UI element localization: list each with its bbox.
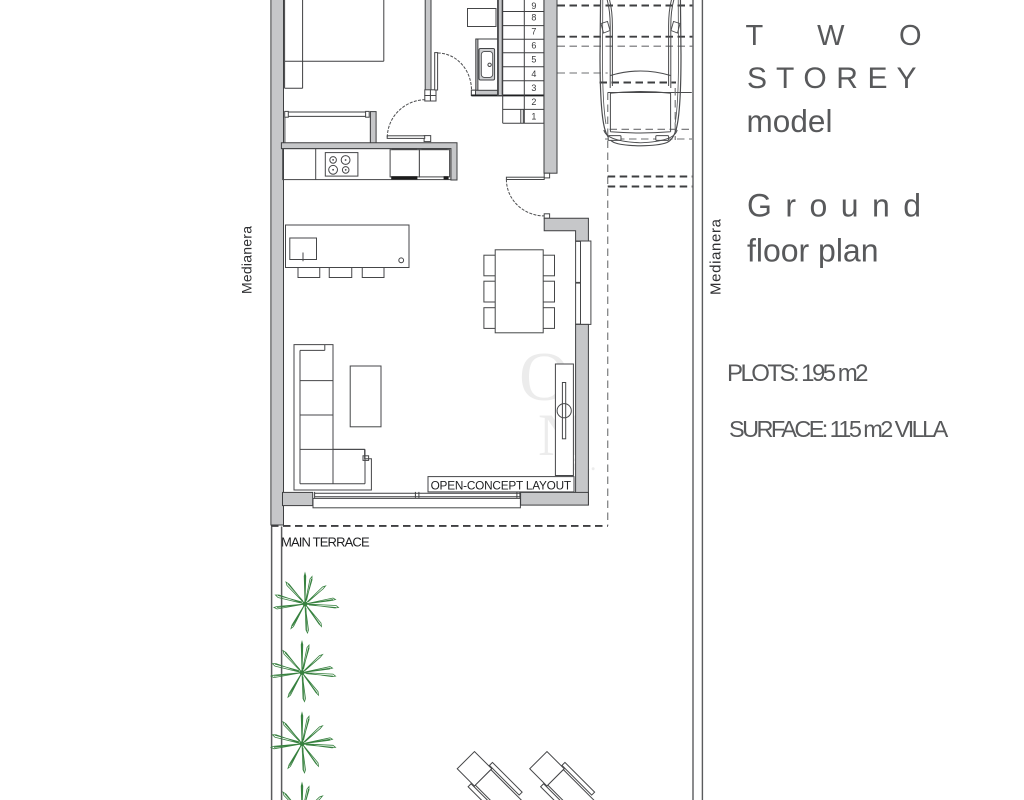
svg-text:OPEN-CONCEPT LAYOUT: OPEN-CONCEPT LAYOUT <box>431 478 571 492</box>
svg-text:PLOTS: 195 m2: PLOTS: 195 m2 <box>727 360 868 387</box>
svg-text:5: 5 <box>531 54 536 64</box>
svg-text:Medianera: Medianera <box>239 226 255 294</box>
svg-text:9: 9 <box>531 1 536 11</box>
svg-text:MAIN TERRACE: MAIN TERRACE <box>281 534 370 549</box>
svg-text:1: 1 <box>531 111 536 121</box>
svg-text:2: 2 <box>531 97 536 107</box>
svg-text:3: 3 <box>531 83 536 93</box>
svg-text:floor plan: floor plan <box>747 232 879 268</box>
svg-text:model: model <box>747 103 833 139</box>
svg-text:SURFACE: 115 m2 VILLA: SURFACE: 115 m2 VILLA <box>729 416 949 442</box>
svg-text:8: 8 <box>531 13 536 23</box>
svg-text:Medianera: Medianera <box>708 218 725 295</box>
svg-text:6: 6 <box>531 40 536 50</box>
svg-text:S T O R E Y: S T O R E Y <box>747 62 917 95</box>
svg-text:7: 7 <box>531 26 536 36</box>
svg-text:4: 4 <box>531 69 536 79</box>
